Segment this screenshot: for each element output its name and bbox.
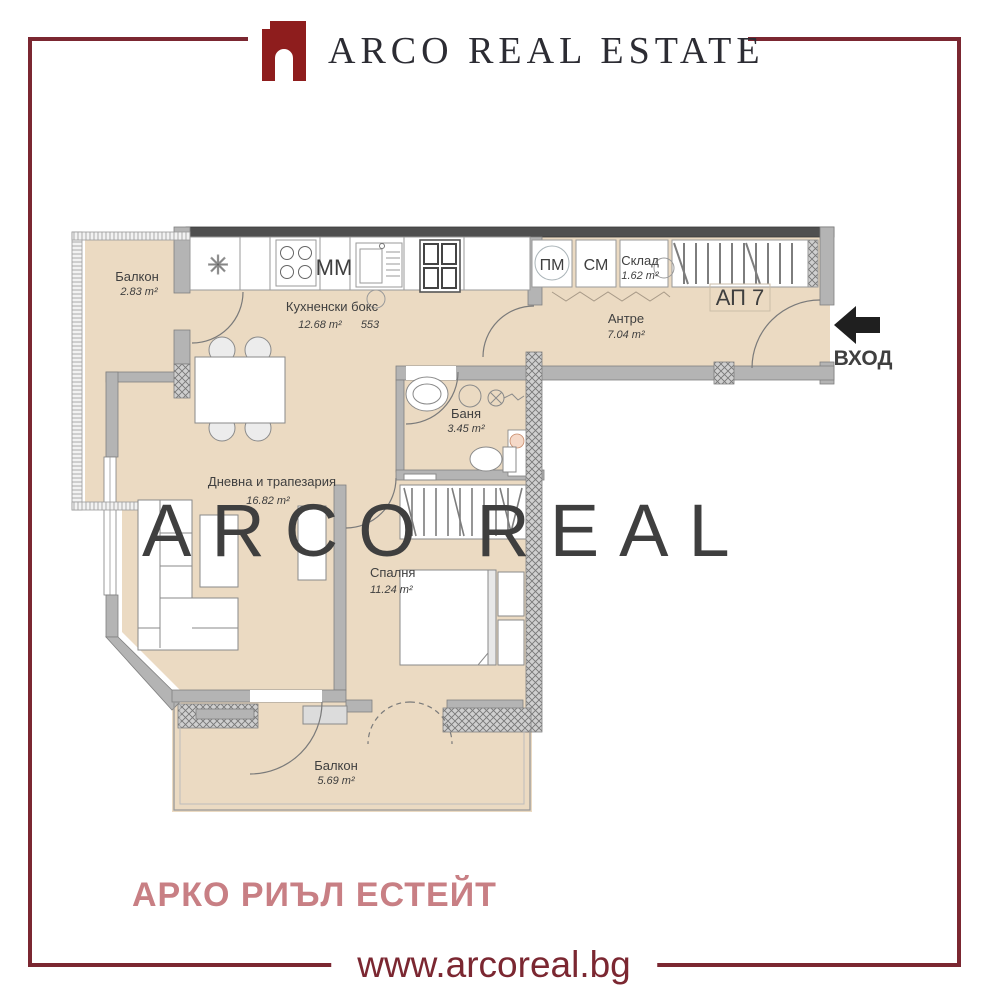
arch-logo-icon — [262, 21, 306, 81]
website-url: www.arcoreal.bg — [357, 944, 631, 985]
page-border — [28, 37, 961, 967]
brand-header: ARCO REAL ESTATE — [248, 12, 748, 90]
brand-name: ARCO REAL ESTATE — [328, 29, 765, 73]
website-footer: www.arcoreal.bg — [331, 938, 657, 992]
brand-name-localized: АРКО РИЪЛ ЕСТЕЙТ — [132, 876, 497, 915]
